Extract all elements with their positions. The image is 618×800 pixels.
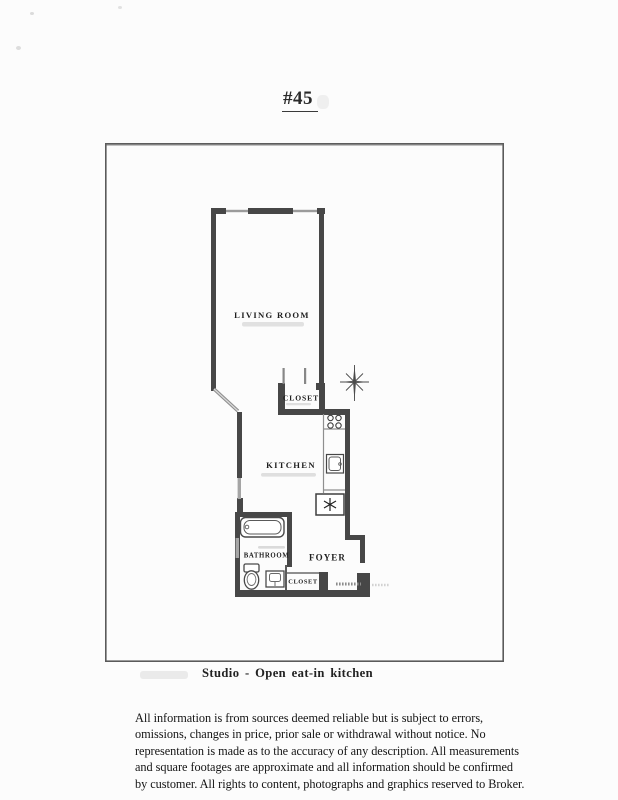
- apartment-walls: [211, 208, 370, 597]
- scan-speck: [16, 46, 21, 50]
- compass-rose-icon: [340, 365, 369, 401]
- refrigerator-star-icon: [316, 494, 344, 515]
- kitchen-sink-icon: [327, 455, 344, 474]
- floor-plan: LIVING ROOM CLOSET KITCHEN BATHROOM FOYE…: [105, 143, 504, 662]
- scan-smudge: [140, 671, 188, 679]
- disclaimer-line: and square footages are approximate and …: [135, 759, 524, 775]
- kitchen-counter: [324, 414, 346, 493]
- closet-door-icon: [283, 368, 307, 384]
- disclaimer-line: by customer. All rights to content, phot…: [135, 776, 524, 792]
- bathroom-label: BATHROOM: [244, 553, 289, 560]
- scan-speck: [30, 12, 34, 15]
- plan-border-top: [106, 144, 503, 146]
- scan-smudge: [317, 95, 329, 109]
- disclaimer-line: representation is made as to the accurac…: [135, 743, 524, 759]
- bathtub-icon: [241, 518, 285, 538]
- plan-caption: Studio - Open eat-in kitchen: [202, 666, 373, 681]
- foyer-label: FOYER: [309, 553, 346, 563]
- disclaimer: All information is from sources deemed r…: [135, 710, 524, 792]
- window-icon: [214, 208, 317, 558]
- toilet-icon: [244, 564, 259, 589]
- closet-upper-label: CLOSET: [283, 394, 319, 403]
- entry-door-icon: [285, 565, 389, 590]
- scan-speck: [118, 6, 122, 9]
- disclaimer-line: omissions, changes in price, prior sale …: [135, 726, 524, 742]
- bathroom-sink-icon: [266, 571, 284, 587]
- closet-lower-label: CLOSET: [288, 579, 318, 586]
- scanned-page: #45: [0, 0, 618, 800]
- stove-burners-icon: [328, 415, 341, 428]
- kitchen-label: KITCHEN: [266, 460, 316, 470]
- unit-number-title: #45: [282, 88, 318, 112]
- disclaimer-line: All information is from sources deemed r…: [135, 710, 524, 726]
- living-room-label: LIVING ROOM: [234, 310, 310, 320]
